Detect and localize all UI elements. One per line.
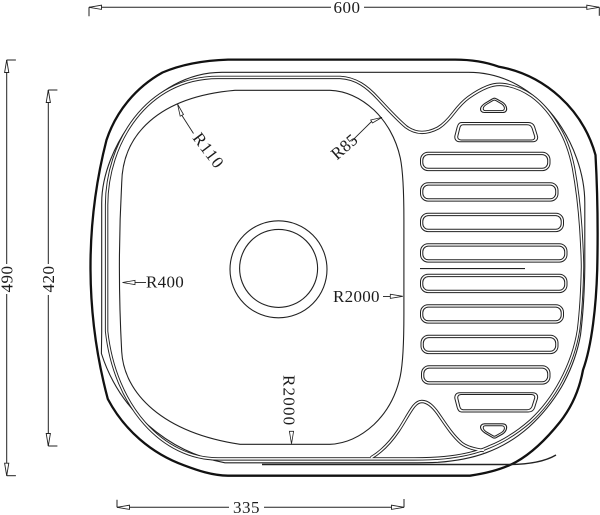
svg-text:R400: R400 (146, 273, 184, 292)
svg-text:420: 420 (39, 266, 58, 293)
svg-text:490: 490 (0, 266, 16, 293)
svg-text:600: 600 (334, 0, 361, 17)
svg-text:R2000: R2000 (280, 375, 299, 426)
svg-text:R2000: R2000 (333, 287, 380, 306)
svg-text:335: 335 (233, 498, 260, 515)
svg-text:R110: R110 (189, 129, 228, 173)
svg-text:R85: R85 (327, 130, 362, 164)
